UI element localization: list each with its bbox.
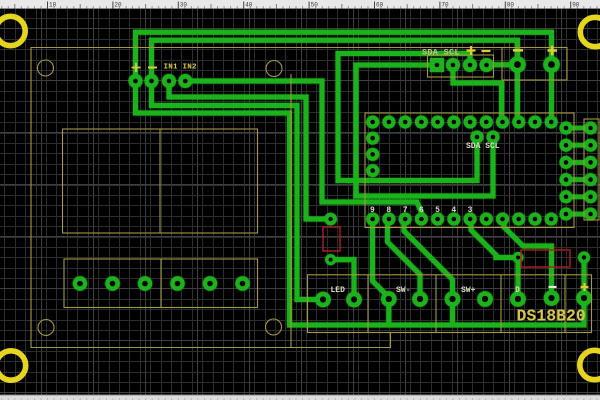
svg-text:9: 9	[370, 206, 375, 215]
svg-text:20: 20	[114, 2, 122, 9]
svg-text:SDA SCL: SDA SCL	[466, 142, 500, 151]
svg-text:D: D	[515, 286, 520, 295]
svg-text:70: 70	[441, 2, 449, 9]
svg-text:10: 10	[49, 2, 57, 9]
svg-text:5: 5	[435, 206, 440, 215]
svg-text:SW-: SW-	[396, 286, 410, 295]
svg-text:LED: LED	[331, 286, 346, 295]
svg-text:40: 40	[245, 2, 253, 9]
svg-text:SW+: SW+	[461, 286, 476, 295]
svg-text:3: 3	[468, 206, 473, 215]
svg-text:50: 50	[311, 2, 319, 9]
svg-text:60: 60	[376, 2, 384, 9]
svg-text:IN1 IN2: IN1 IN2	[164, 64, 198, 72]
svg-text:6: 6	[419, 206, 424, 215]
svg-text:SDA SCL: SDA SCL	[422, 48, 460, 58]
svg-text:DS18B20: DS18B20	[517, 307, 586, 326]
svg-text:30: 30	[180, 2, 188, 9]
svg-text:4: 4	[451, 206, 456, 215]
svg-text:80: 80	[507, 2, 515, 9]
svg-text:90: 90	[572, 2, 580, 9]
svg-text:7: 7	[403, 206, 408, 215]
svg-text:8: 8	[386, 206, 391, 215]
